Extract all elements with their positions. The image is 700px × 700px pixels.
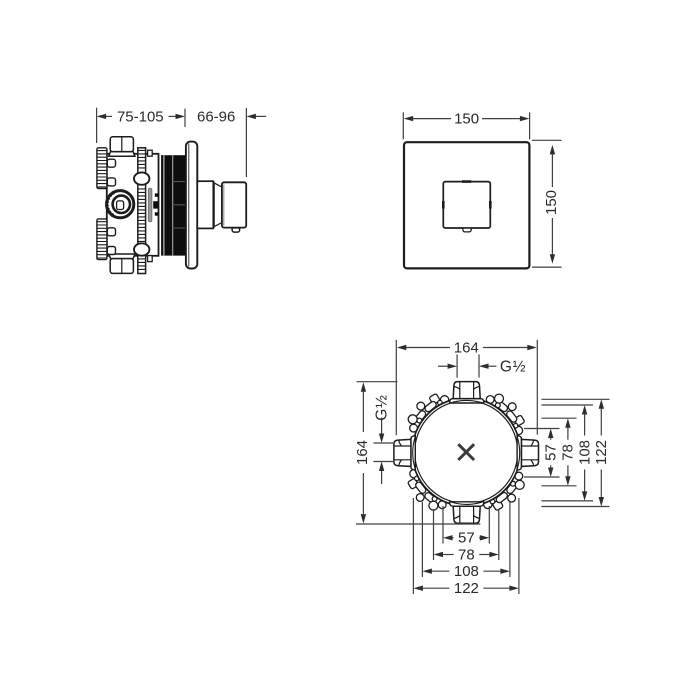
svg-text:108: 108 xyxy=(454,563,479,580)
svg-text:108: 108 xyxy=(576,440,593,465)
svg-text:122: 122 xyxy=(593,440,610,465)
svg-text:G½: G½ xyxy=(500,358,526,375)
svg-text:78: 78 xyxy=(458,546,475,563)
svg-text:164: 164 xyxy=(354,440,371,465)
svg-text:75-105: 75-105 xyxy=(117,108,164,125)
svg-text:G½: G½ xyxy=(374,395,391,421)
svg-text:57: 57 xyxy=(543,444,560,461)
svg-text:78: 78 xyxy=(560,444,577,461)
svg-text:164: 164 xyxy=(454,339,479,356)
svg-text:150: 150 xyxy=(543,190,560,215)
svg-text:122: 122 xyxy=(454,580,479,597)
svg-text:66-96: 66-96 xyxy=(197,108,235,125)
svg-text:57: 57 xyxy=(458,530,475,547)
svg-text:150: 150 xyxy=(454,111,479,128)
